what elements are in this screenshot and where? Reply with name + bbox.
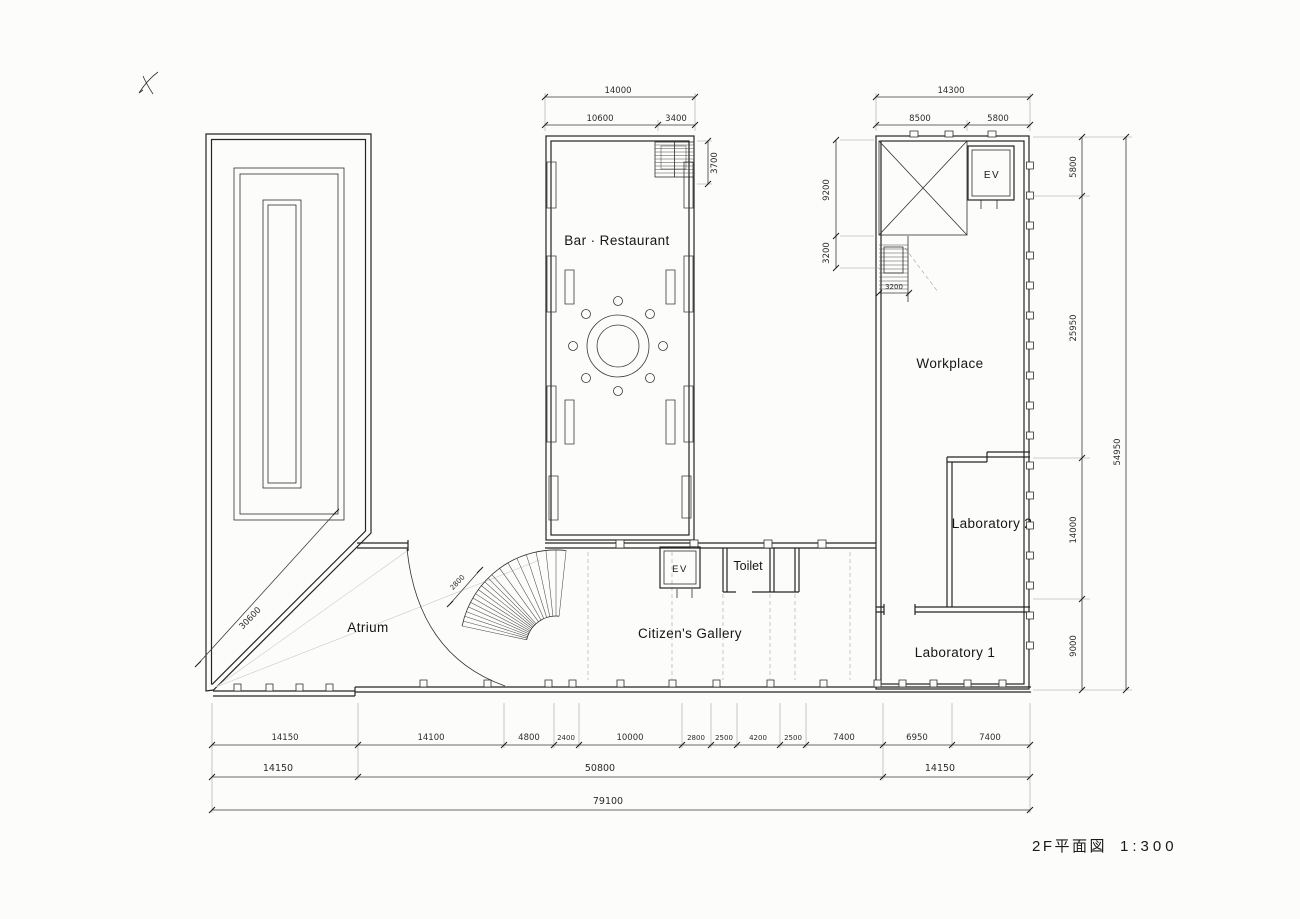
dim-row1-1: 14100	[417, 733, 444, 743]
void-room	[879, 141, 967, 292]
room-label-bar-restaurant: Bar · Restaurant	[564, 233, 669, 248]
dim-bar-top-right: 3400	[665, 114, 687, 124]
dim-bar-stair-depth: 3700	[710, 152, 720, 174]
room-label-ev-wing: EV	[984, 170, 1000, 181]
dim-wing-left-lower: 3200	[822, 242, 832, 264]
dimension-row-2: 14150 50800 14150	[263, 763, 955, 774]
title-caption: 2F平面図 1:300	[1032, 838, 1178, 855]
dimension-row-1: 14150 14100 4800 2400 10000 2800 2500 42…	[271, 733, 1000, 743]
dim-spiral-stair: 2800	[448, 573, 466, 591]
caption-title: 2F平面図	[1032, 838, 1107, 855]
caption-scale: 1:300	[1120, 838, 1178, 855]
dim-right-total: 54950	[1113, 438, 1123, 465]
room-label-laboratory-2: Laboratory 2	[952, 516, 1033, 531]
left-ramp-block	[206, 134, 371, 691]
bar-stair	[655, 142, 694, 177]
room-label-laboratory-1: Laboratory 1	[915, 645, 996, 660]
room-label-workplace: Workplace	[916, 356, 983, 371]
dim-right-lab1: 9000	[1069, 635, 1079, 657]
gallery-elevator: EV	[660, 547, 700, 598]
room-label-toilet: Toilet	[733, 559, 763, 573]
dim-right-top: 5800	[1069, 156, 1079, 178]
floor-plan-canvas: 30600 Atrium 2800 Bar · Restaurant	[0, 0, 1300, 919]
dim-row1-3: 2400	[557, 734, 575, 742]
dimension-lines: 14000 10600 3400 3700 14300 8500 5800 92…	[209, 86, 1132, 813]
spiral-stair: 2800	[447, 550, 566, 640]
dim-row2-0: 14150	[263, 763, 293, 774]
dim-row1-4: 10000	[616, 733, 643, 743]
wing-stair	[879, 236, 908, 302]
room-label-atrium: Atrium	[347, 620, 388, 635]
workplace-wing: EV Workplace Laboratory 2 Laboratory 1	[876, 131, 1034, 689]
dim-wing-top-left: 8500	[909, 114, 931, 124]
dim-row1-5: 2800	[687, 734, 705, 742]
citizens-gallery-strip: EV Toilet Citizen's Gallery	[213, 540, 1031, 696]
dim-bar-top-total: 14000	[604, 86, 631, 96]
atrium-area: 30600 Atrium 2800	[195, 509, 566, 687]
dim-bar-top-left: 10600	[586, 114, 613, 124]
dim-wing-left-upper: 9200	[822, 179, 832, 201]
dim-row1-7: 4200	[749, 734, 767, 742]
dim-atrium-diagonal: 30600	[238, 605, 264, 631]
dim-row1-8: 2500	[784, 734, 802, 742]
dim-row1-11: 7400	[979, 733, 1001, 743]
dim-right-lab2: 14000	[1069, 516, 1079, 543]
dim-wing-top-total: 14300	[937, 86, 964, 96]
dim-row3-total: 79100	[593, 796, 623, 807]
bar-restaurant-block: Bar · Restaurant	[546, 136, 694, 540]
floor-plan-sheet: 30600 Atrium 2800 Bar · Restaurant	[0, 0, 1300, 919]
dim-wing-stair-width: 3200	[885, 283, 903, 291]
dim-row1-6: 2500	[715, 734, 733, 742]
dim-row1-0: 14150	[271, 733, 298, 743]
dim-row2-2: 14150	[925, 763, 955, 774]
room-label-ev-gallery: EV	[672, 564, 688, 575]
dim-row1-10: 6950	[906, 733, 928, 743]
dim-row2-1: 50800	[585, 763, 615, 774]
room-label-citizens-gallery: Citizen's Gallery	[638, 626, 742, 641]
hand-mark-icon	[139, 72, 158, 94]
dim-row1-9: 7400	[833, 733, 855, 743]
dim-right-mid: 25950	[1069, 314, 1079, 341]
dim-row1-2: 4800	[518, 733, 540, 743]
dim-wing-top-right: 5800	[987, 114, 1009, 124]
wing-elevator: EV	[968, 146, 1014, 209]
bar-tables	[547, 162, 693, 520]
